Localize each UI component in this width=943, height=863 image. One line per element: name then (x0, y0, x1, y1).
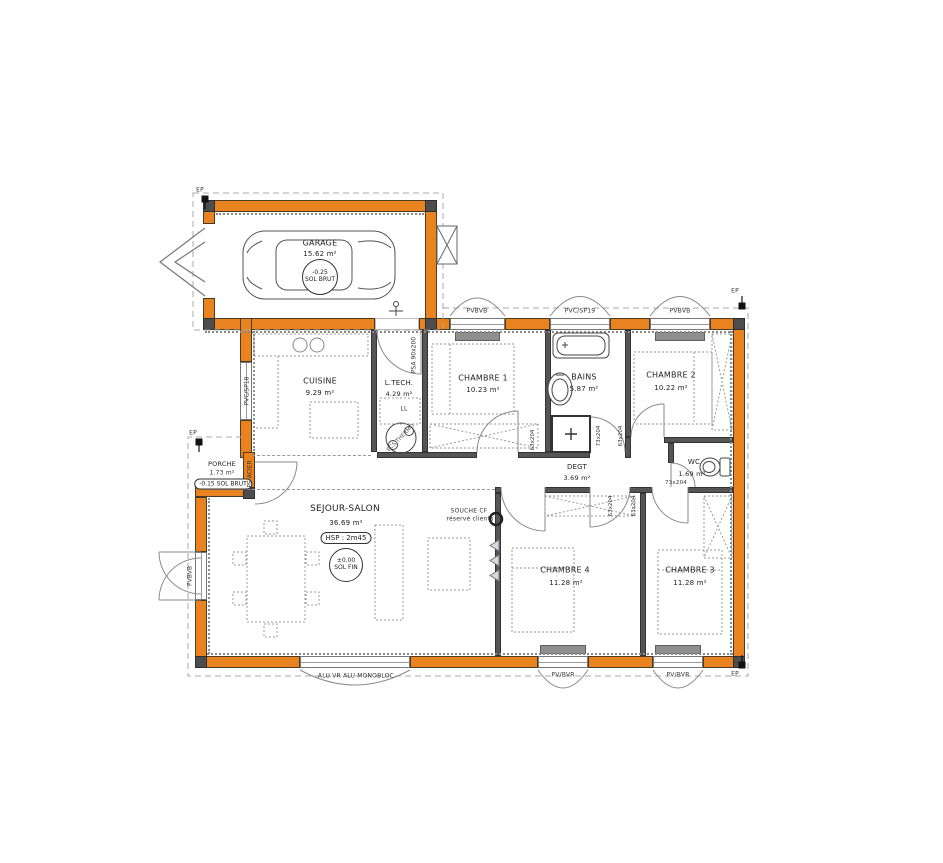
door-size-63-2: 63x204 (618, 426, 624, 447)
entry-door-label: PE ACIER (247, 460, 254, 487)
room-area-bains: 5.87 m² (570, 385, 599, 393)
window-label-pvbvb-2: PVBVB (670, 308, 691, 315)
room-area-chambre2: 10.22 m² (654, 384, 688, 392)
room-label-ltech: L.TECH. (385, 379, 413, 387)
souche-note-line2: réservé clients (446, 516, 493, 523)
room-area-cuisine: 9.29 m² (306, 389, 335, 397)
room-area-degt: 3.69 m² (564, 474, 591, 482)
garage-gates (160, 228, 205, 296)
door-size-63-1: 63x204 (530, 430, 536, 451)
vent-box (437, 226, 457, 264)
window-label-pvcsp18: PVC/SP18 (244, 377, 251, 406)
sejour-opening-swing (501, 487, 545, 531)
plan-linework (0, 0, 943, 863)
window-label-pvbvr-2: PV/BVR (666, 672, 689, 679)
entry-door-swing (255, 462, 297, 504)
level-pill-porche: -0.15 SOL BRUT (194, 479, 252, 490)
step-symbol (389, 302, 403, 317)
ep-label-1: EP (196, 187, 204, 194)
kitchen-counter (254, 334, 368, 438)
room-label-porche: PORCHE (208, 460, 236, 468)
floor-plan: GARAGE 15.62 m² -0.25 SOL BRUT CUISINE 9… (0, 0, 943, 863)
window-label-pvbvr-1: PV/BVR (551, 672, 574, 679)
ep-markers (196, 196, 745, 668)
door-swings (159, 297, 710, 689)
room-area-garage: 15.62 m² (303, 250, 337, 258)
washer-label: LL (400, 406, 407, 413)
room-area-ltech: 4.29 m² (386, 390, 413, 398)
sejour-level-sub: SOL FIN (334, 565, 358, 572)
room-area-chambre4: 11.28 m² (549, 579, 583, 587)
room-area-wc: 1.69 m² (679, 470, 706, 478)
bay-label-monobloc: ALU.VR ALU MONOBLOC (318, 673, 394, 680)
room-label-sejour: SEJOUR-SALON (310, 504, 380, 514)
kitchen-sink-icon (293, 338, 324, 352)
room-area-porche: 1.73 m² (210, 470, 235, 477)
room-area-sejour: 36.69 m² (329, 519, 363, 527)
door-size-63-4: 63x204 (631, 496, 637, 517)
chambre3-door-swing (652, 487, 688, 523)
shower-icon (552, 416, 590, 452)
window-label-pvcsp19: PVC/SP19 (565, 308, 596, 315)
garage-level-sub: SOL BRUT (305, 277, 335, 284)
room-area-chambre1: 10.23 m² (466, 386, 500, 394)
chambre1-door-swing (477, 411, 518, 452)
room-label-bains: BAINS (571, 373, 596, 382)
dining-set (233, 521, 319, 637)
ep-label-2: EP (189, 430, 197, 437)
sofa-set (375, 525, 470, 620)
level-badge-garage: -0.25 SOL BRUT (302, 259, 338, 295)
room-area-chambre3: 11.28 m² (673, 579, 707, 587)
ceiling-height-pill: HSP : 2m45 (321, 532, 372, 544)
bathtub-icon (553, 333, 609, 358)
room-label-chambre1: CHAMBRE 1 (458, 374, 508, 383)
window-label-pvbvb-1: PVBVB (467, 308, 488, 315)
washbasin-icon (548, 373, 572, 405)
ep-label-3: EP (731, 288, 739, 295)
room-label-chambre3: CHAMBRE 3 (665, 566, 715, 575)
room-label-chambre2: CHAMBRE 2 (646, 371, 696, 380)
level-badge-sejour: ±0.00 SOL FIN (329, 548, 363, 582)
window-label-pvbvb-3: PVBVB (187, 566, 194, 586)
room-label-chambre4: CHAMBRE 4 (540, 566, 590, 575)
door-size-73-1: 73x204 (596, 426, 602, 447)
room-label-garage: GARAGE (303, 239, 338, 248)
room-label-cuisine: CUISINE (303, 377, 337, 386)
service-door-label: PSA 90x200 (411, 337, 418, 373)
door-size-63-3: 63x204 (608, 496, 614, 517)
ep-label-4: EP (731, 671, 739, 678)
chambre2-door-swing (631, 404, 664, 437)
room-label-wc: WC (688, 458, 700, 466)
vent-arrows (490, 540, 499, 581)
door-size-73-2: 73x204 (665, 480, 687, 486)
souche-note-line1: SOUCHE CF (451, 508, 488, 515)
room-label-degt: DEGT (567, 463, 587, 471)
